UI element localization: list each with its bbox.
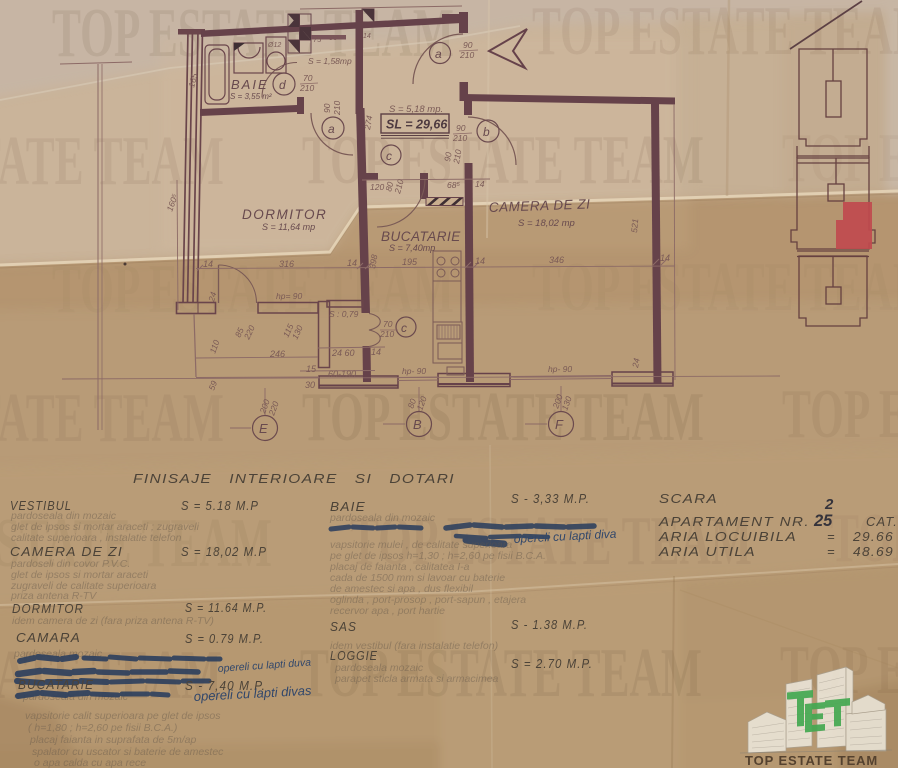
svg-text:S = 11.64 M.P.: S = 11.64 M.P.	[185, 600, 267, 615]
svg-text:210: 210	[379, 329, 394, 339]
svg-text:S - 1.38 M.P.: S - 1.38 M.P.	[511, 617, 588, 632]
svg-text:14: 14	[203, 259, 213, 269]
svg-text:=: =	[827, 529, 836, 544]
svg-text:BAIE: BAIE	[231, 77, 269, 92]
svg-text:CAMERA DE ZI: CAMERA DE ZI	[10, 544, 123, 559]
svg-text:S = 1,58mp: S = 1,58mp	[308, 56, 352, 66]
svg-text:14: 14	[475, 179, 485, 189]
svg-text:S = 0.79 M.P.: S = 0.79 M.P.	[185, 631, 264, 646]
svg-text:S = 3,55 m²: S = 3,55 m²	[230, 92, 272, 101]
svg-text:14: 14	[371, 347, 381, 357]
svg-text:SAS: SAS	[330, 619, 357, 634]
svg-text:BUCATARIE: BUCATARIE	[381, 229, 461, 244]
svg-text:S : 0,79: S : 0,79	[329, 309, 359, 319]
svg-text:195: 195	[402, 257, 418, 267]
svg-text:25: 25	[813, 512, 833, 530]
svg-text:14: 14	[363, 33, 371, 40]
svg-text:recervor apa , port hartie: recervor apa , port hartie	[330, 605, 445, 617]
svg-text:( h=1,80 ; h=2,60 pe fisii: ( h=1,80 ; h=2,60 pe fisii B.C.A.)	[28, 722, 177, 734]
svg-text:DORMITOR: DORMITOR	[12, 601, 84, 616]
svg-text:S = 5.18 M.P: S = 5.18 M.P	[181, 498, 259, 513]
svg-text:S = 18,02 M.P: S = 18,02 M.P	[181, 544, 267, 559]
svg-text:c: c	[386, 149, 392, 163]
svg-text:SL = 29,66: SL = 29,66	[386, 118, 448, 132]
svg-text:SCARA: SCARA	[659, 491, 718, 506]
svg-text:hp= 90: hp= 90	[276, 291, 303, 301]
svg-text:75: 75	[313, 35, 322, 44]
svg-text:90: 90	[322, 103, 332, 113]
svg-text:68⁵: 68⁵	[447, 180, 460, 190]
svg-text:TOP ESTATE TEAM: TOP ESTATE TEAM	[52, 0, 454, 72]
svg-text:TOP ESTATE TEAM: TOP ESTATE TEAM	[745, 753, 878, 768]
svg-text:316: 316	[279, 259, 294, 269]
svg-text:210: 210	[459, 50, 474, 60]
svg-text:210: 210	[452, 133, 467, 143]
svg-text:S = 2.70 M.P.: S = 2.70 M.P.	[511, 656, 593, 671]
svg-text:346: 346	[549, 255, 564, 265]
svg-text:14: 14	[475, 256, 485, 266]
svg-text:a: a	[328, 122, 335, 136]
svg-text:vapsitorie calit superioara pe: vapsitorie calit superioara pe glet de i…	[25, 710, 221, 722]
svg-text:ARIA LOCUIBILA: ARIA LOCUIBILA	[658, 529, 797, 544]
svg-text:B: B	[413, 417, 422, 432]
svg-text:2: 2	[824, 496, 834, 513]
svg-text:TOP ESTATE TEAM: TOP ESTATE TEAM	[0, 378, 224, 456]
svg-text:FINISAJE INTERIOARE SI D: FINISAJE INTERIOARE SI DOTARI	[133, 471, 455, 486]
svg-text:30: 30	[305, 380, 315, 390]
svg-text:TOP ESTATE TEAM: TOP ESTATE TEAM	[532, 247, 898, 325]
svg-text:hp- 90: hp- 90	[548, 364, 572, 374]
svg-text:Ø12: Ø12	[267, 42, 281, 49]
svg-text:29.66: 29.66	[852, 529, 894, 544]
svg-text:S - 3,33 M.P.: S - 3,33 M.P.	[511, 491, 590, 506]
svg-text:14: 14	[347, 258, 357, 268]
svg-text:60-190: 60-190	[328, 369, 356, 379]
svg-text:F: F	[555, 417, 564, 432]
svg-text:90: 90	[456, 123, 466, 133]
svg-text:95⁴: 95⁴	[329, 33, 341, 42]
svg-text:calitate superioara , instalat: calitate superioara , instalatie telefon	[11, 532, 182, 544]
svg-text:a: a	[435, 47, 442, 61]
svg-text:E: E	[259, 421, 268, 436]
svg-text:S = 11,64 mp: S = 11,64 mp	[262, 222, 315, 232]
svg-text:521: 521	[629, 218, 640, 233]
svg-text:48.69: 48.69	[853, 544, 894, 559]
svg-text:24: 24	[630, 357, 642, 369]
svg-text:TOP ESTATE TEAM: TOP ESTATE TEAM	[302, 377, 704, 455]
svg-text:ARIA UTILA: ARIA UTILA	[658, 544, 756, 559]
svg-text:90: 90	[463, 40, 473, 50]
svg-text:24 60: 24 60	[331, 348, 355, 358]
svg-text:S = 7,40mp: S = 7,40mp	[389, 243, 435, 253]
svg-text:TOP ESTATE TEAM: TOP ESTATE TEAM	[782, 374, 898, 452]
svg-text:LOGGIE: LOGGIE	[330, 648, 378, 663]
svg-text:o apa calda cu apa rece: o apa calda cu apa rece	[34, 757, 146, 768]
svg-text:210: 210	[332, 101, 342, 116]
svg-text:DORMITOR: DORMITOR	[242, 207, 327, 222]
svg-text:placaj faianta in suprafata de: placaj faianta in suprafata de 5m/ap	[29, 734, 197, 746]
svg-text:hp- 90: hp- 90	[402, 366, 426, 376]
svg-text:idem camera de zi (fara priza: idem camera de zi (fara priza antena R-T…	[12, 615, 214, 627]
svg-text:=: =	[827, 544, 836, 559]
svg-text:pardoseala din mozaic: pardoseala din mozaic	[329, 512, 436, 524]
svg-text:c: c	[401, 321, 407, 335]
svg-text:APARTAMENT NR.: APARTAMENT NR.	[658, 514, 810, 529]
svg-text:TOP ESTATE TEAM: TOP ESTATE TEAM	[532, 0, 898, 70]
svg-text:BUCATARIE: BUCATARIE	[18, 677, 94, 692]
svg-text:b: b	[483, 125, 490, 139]
svg-text:246: 246	[269, 349, 285, 359]
svg-text:15: 15	[306, 364, 317, 374]
svg-text:CAMARA: CAMARA	[16, 630, 81, 645]
svg-text:d: d	[279, 78, 286, 92]
svg-text:14: 14	[660, 253, 670, 263]
svg-text:CAT.: CAT.	[866, 514, 898, 529]
svg-text:parapet sticla armata si armac: parapet sticla armata si armacimea	[334, 673, 499, 685]
svg-text:S = 18,02 mp: S = 18,02 mp	[518, 218, 575, 229]
svg-text:70: 70	[383, 319, 393, 329]
svg-text:210: 210	[299, 83, 314, 93]
svg-text:70: 70	[303, 73, 313, 83]
